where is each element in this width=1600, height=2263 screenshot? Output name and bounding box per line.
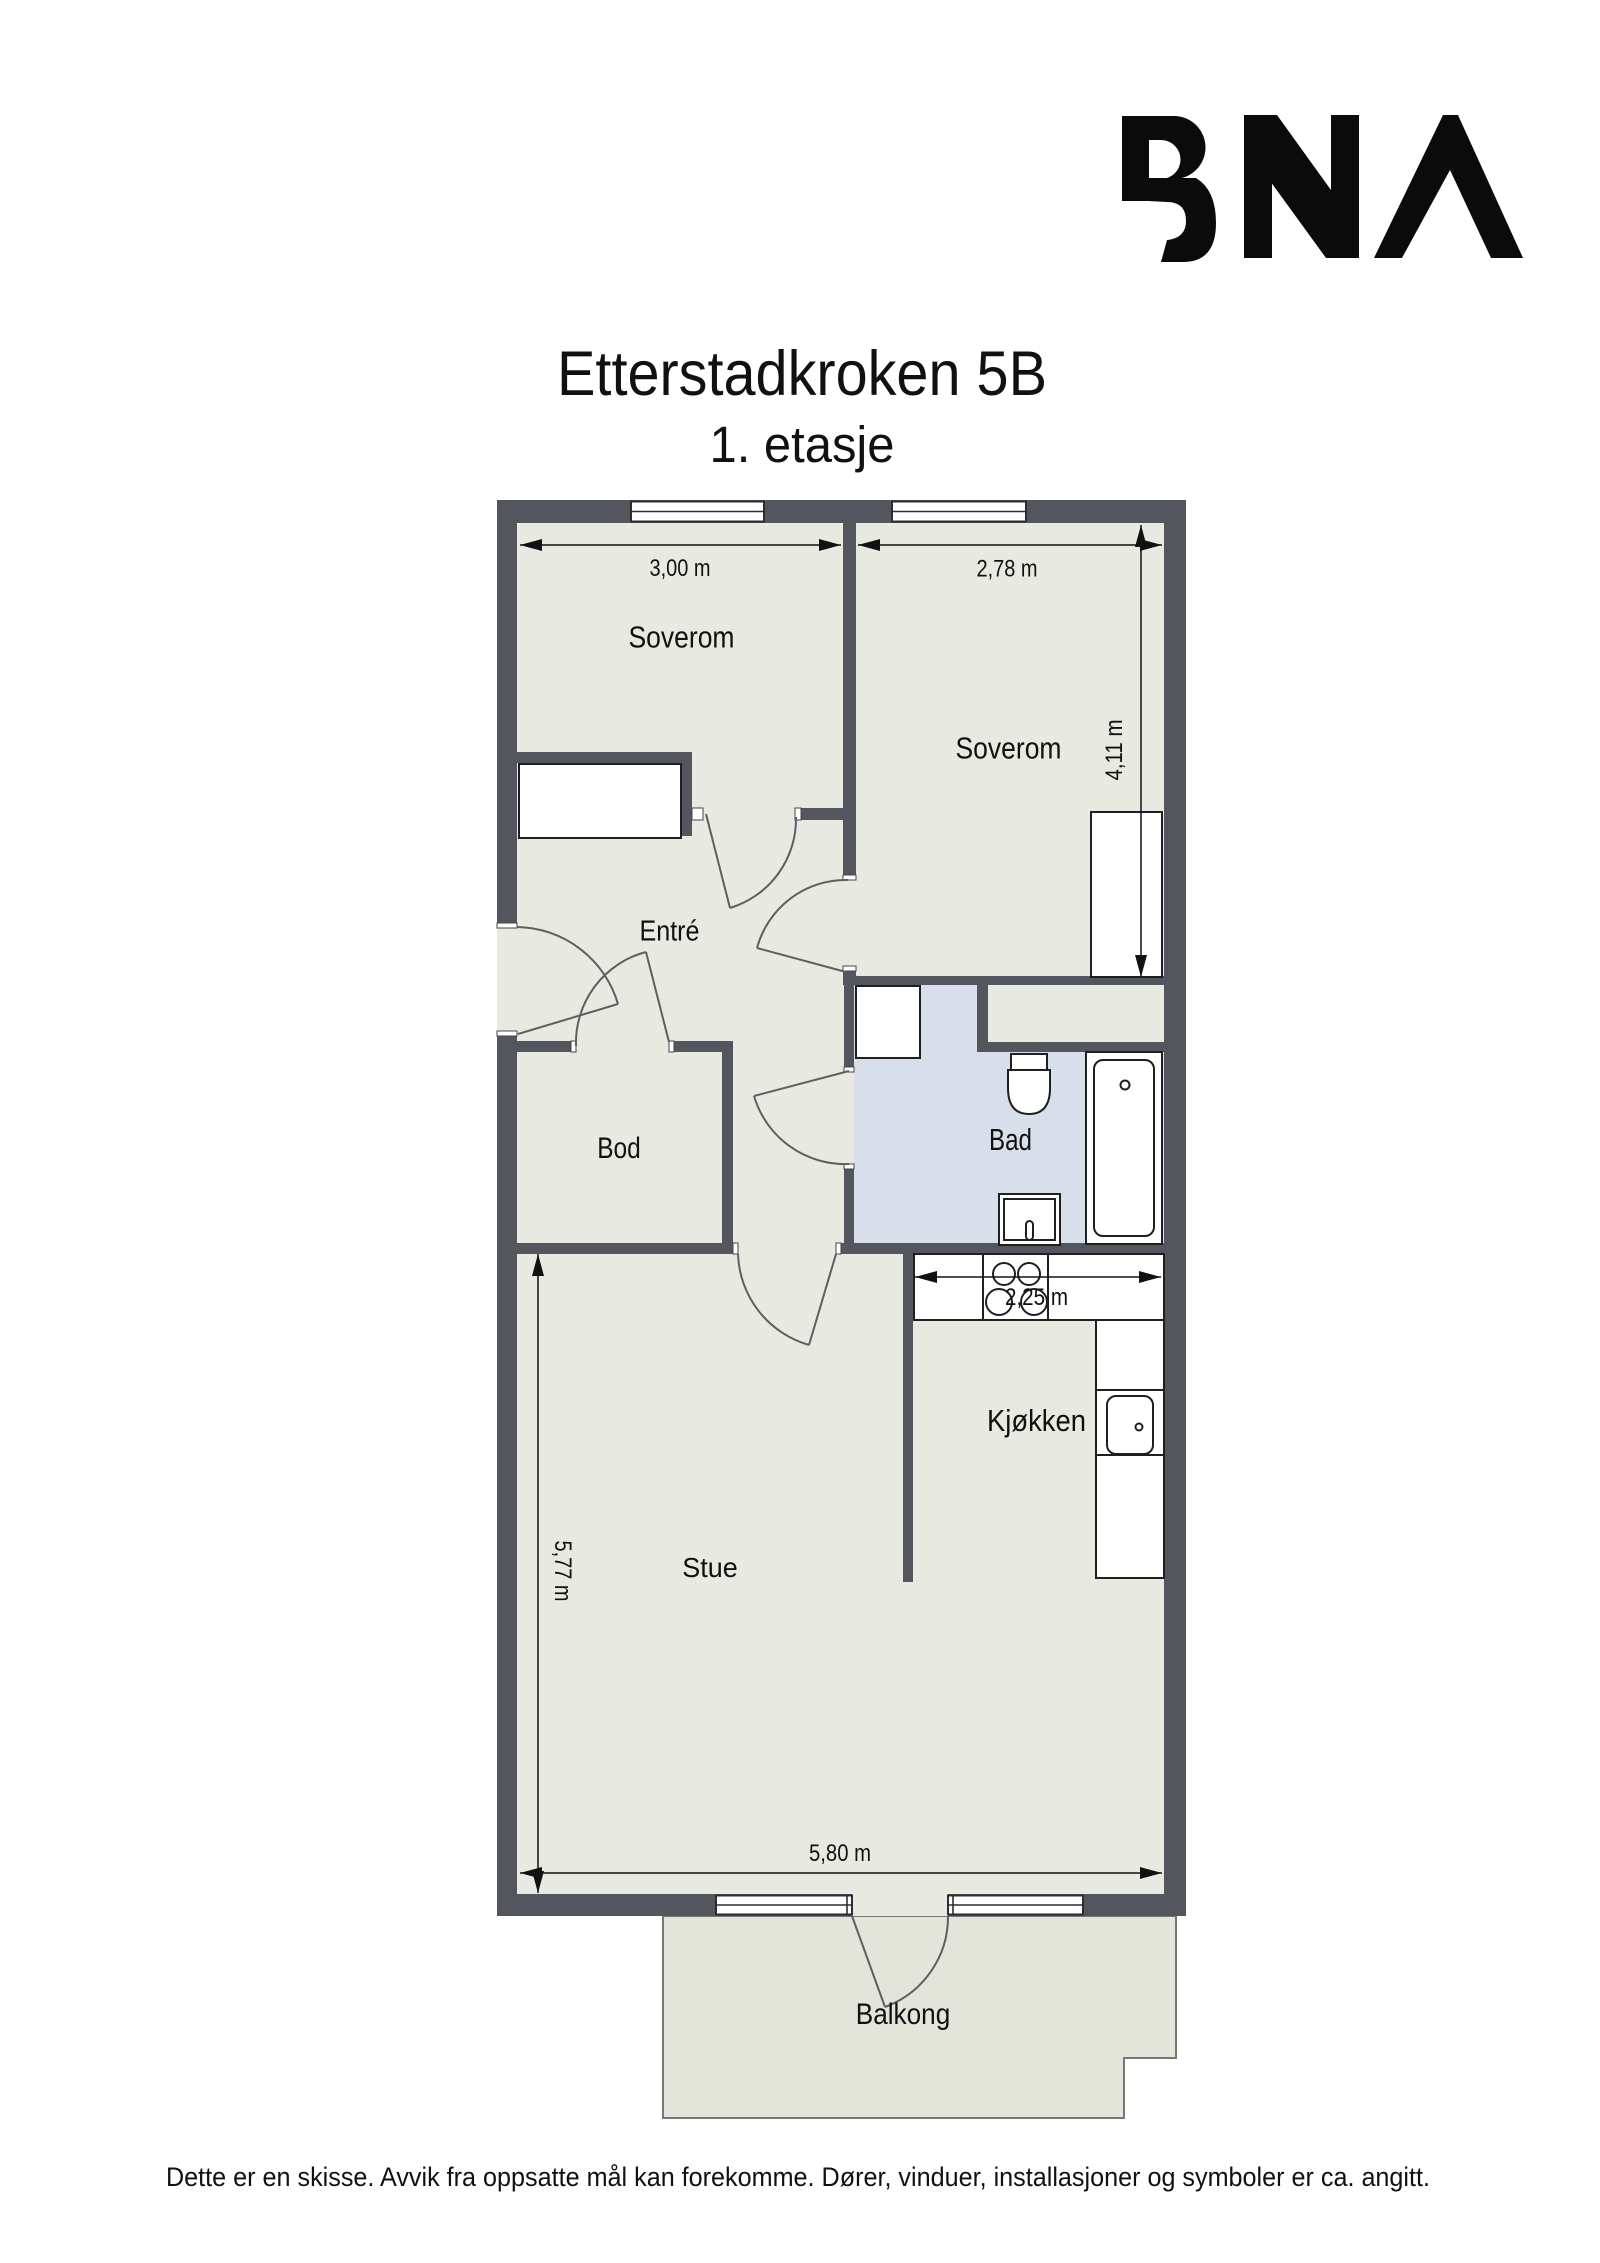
svg-text:Dette er en skisse. Avvik fra: Dette er en skisse. Avvik fra oppsatte m… [166, 2162, 1430, 2192]
svg-text:Soverom: Soverom [956, 731, 1062, 766]
svg-text:4,11 m: 4,11 m [1101, 720, 1128, 781]
svg-text:Balkong: Balkong [856, 1998, 951, 2031]
svg-text:Bod: Bod [597, 1132, 641, 1165]
svg-text:1. etasje: 1. etasje [710, 416, 895, 473]
svg-text:Entré: Entré [640, 916, 700, 948]
svg-text:2,78 m: 2,78 m [977, 556, 1038, 583]
svg-text:Bad: Bad [989, 1122, 1032, 1157]
svg-text:5,77 m: 5,77 m [549, 1541, 576, 1602]
svg-text:5,80 m: 5,80 m [809, 1840, 871, 1867]
svg-text:3,00 m: 3,00 m [650, 555, 711, 582]
svg-text:Stue: Stue [682, 1552, 738, 1583]
svg-text:2,25 m: 2,25 m [1005, 1284, 1068, 1311]
svg-text:Kjøkken: Kjøkken [987, 1403, 1086, 1438]
svg-text:Soverom: Soverom [629, 620, 735, 655]
svg-text:Etterstadkroken 5B: Etterstadkroken 5B [557, 339, 1047, 409]
